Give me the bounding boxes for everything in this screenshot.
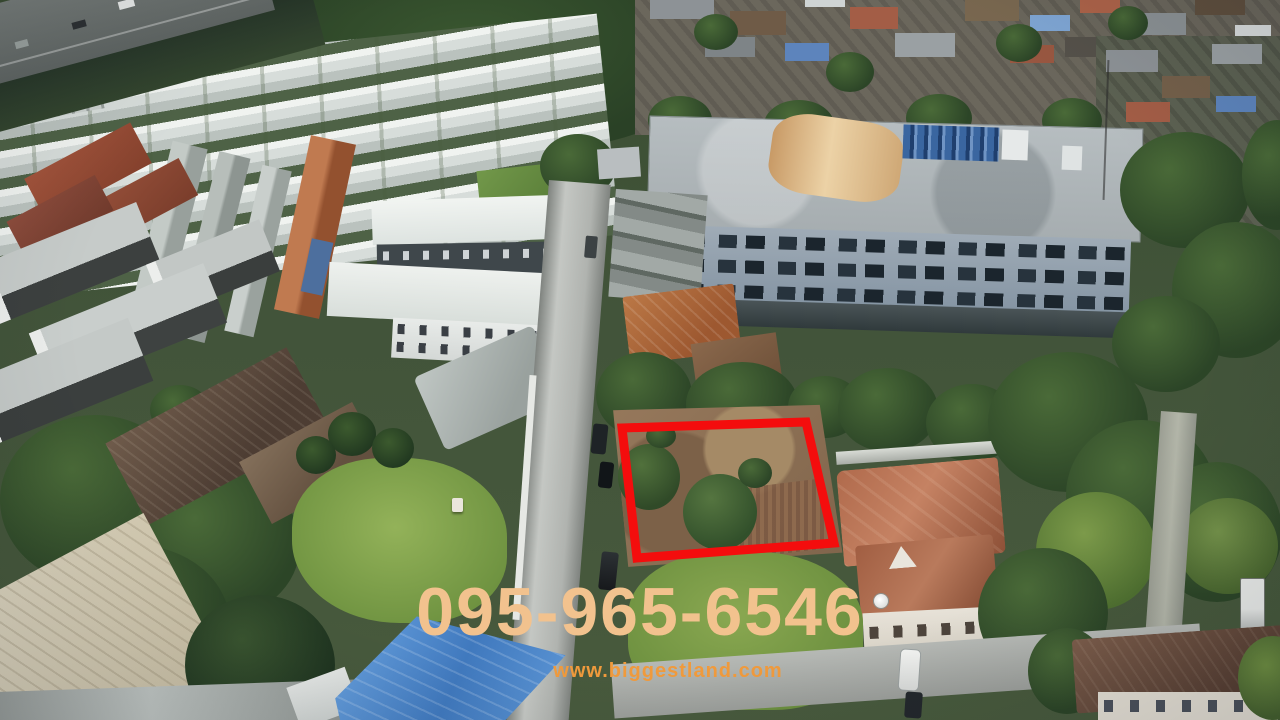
tree [694, 14, 738, 50]
spirit-house [452, 498, 463, 512]
tree [618, 444, 680, 510]
tree [838, 368, 938, 452]
tree [826, 52, 874, 92]
aerial-photo: 095-965-6546 www.biggestland.com [0, 0, 1280, 720]
gray-roof-stack [608, 189, 707, 303]
car [590, 423, 608, 454]
window-row [658, 258, 1124, 286]
white-slab-roof [371, 195, 562, 246]
car [598, 461, 615, 488]
shed-roof [597, 147, 641, 180]
tree [1108, 6, 1148, 40]
white-slab-roof [327, 262, 565, 328]
tree [646, 424, 676, 448]
car [904, 691, 923, 718]
tree [738, 458, 772, 488]
rooftop-structure [1062, 146, 1083, 171]
phone-number-overlay: 095-965-6546 [0, 578, 1280, 646]
rooftop-structure [1001, 130, 1028, 161]
website-overlay: www.biggestland.com [28, 660, 1280, 683]
palm-tree [296, 436, 336, 474]
window-row [383, 249, 549, 261]
palm-tree [372, 428, 414, 468]
car [584, 236, 598, 259]
rooftop-equipment [902, 124, 999, 161]
tree [996, 24, 1042, 62]
window-row [659, 233, 1125, 261]
